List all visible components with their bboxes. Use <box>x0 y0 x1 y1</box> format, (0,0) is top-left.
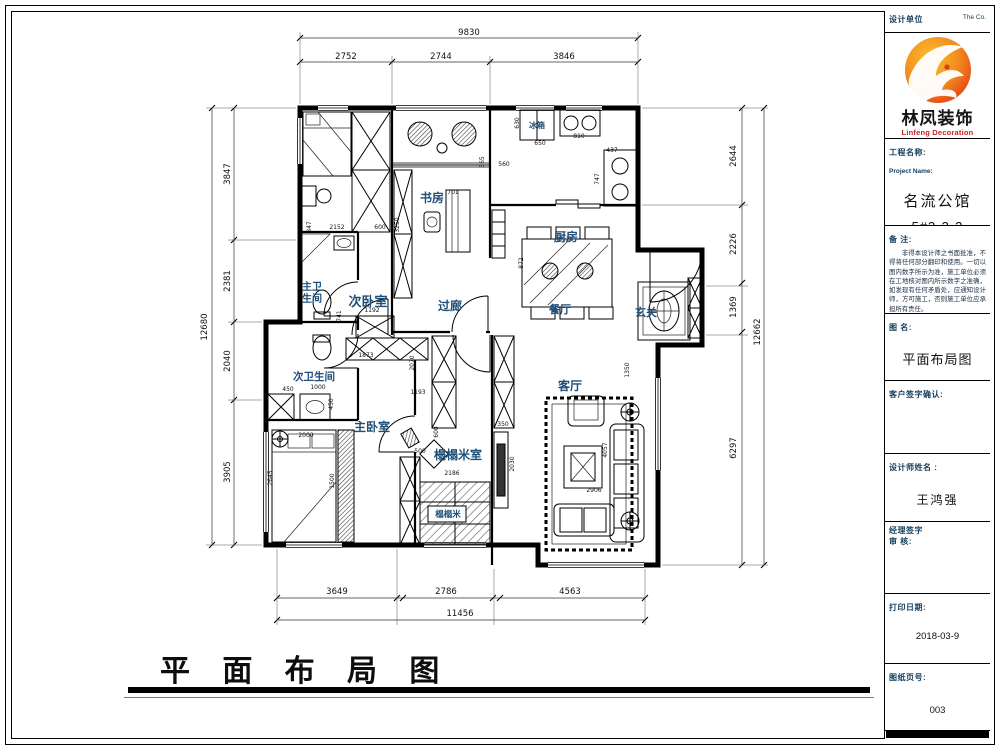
ceiling-fan-icon <box>621 403 639 421</box>
manager-signature-section: 经理签字 审 核: <box>885 522 990 594</box>
dim-label: 2030 <box>509 456 516 471</box>
dim-label: 1000 <box>310 384 325 391</box>
dim-label: 6297 <box>729 437 739 459</box>
dim-label: 872 <box>518 257 525 269</box>
client-signature-label: 客户签字确认: <box>889 390 943 399</box>
dim-label: 2645 <box>267 470 274 485</box>
room-label-dining: 餐厅 <box>548 302 571 316</box>
dim-label: 810 <box>573 133 585 140</box>
dim-label: 847 <box>306 221 313 233</box>
room-label-second-bedroom: 次卧室 <box>348 294 387 310</box>
floor-plan-canvas: 9830275227443846126803847238120403905264… <box>0 0 884 750</box>
remarks-section: 备 注: 非得本设计师之书面批准，不得将任何部分翻印和使用。一切以图内数字所示为… <box>885 226 990 314</box>
dim-label: 2381 <box>223 270 233 292</box>
title-block: 设计单位 The Co. 林凤装饰 Linfeng Decoration <box>884 11 990 739</box>
room-label-corridor: 过廊 <box>438 298 462 313</box>
dim-label: 2752 <box>335 52 357 62</box>
dim-label: 560 <box>498 161 510 168</box>
dim-label: 450 <box>282 386 294 393</box>
drawing-name-label: 图 名: <box>889 323 912 332</box>
company-logo: 林凤装饰 Linfeng Decoration <box>885 33 990 139</box>
dim-label: 3905 <box>223 461 233 483</box>
dim-label: 1193 <box>410 389 425 396</box>
room-label-second-bath: 次卫生间 <box>293 370 335 383</box>
label-tatami-mat: 榻榻米 <box>435 509 461 520</box>
dim-label: 630 <box>514 117 521 129</box>
dim-label: 12680 <box>200 313 210 340</box>
master-bath-fixtures <box>302 234 354 319</box>
sheet-number-value: 003 <box>889 705 986 716</box>
dim-label: 500 <box>414 448 426 455</box>
ceiling-fan-icon <box>621 512 639 530</box>
sheet-title: 平 面 布 局 图 <box>160 646 451 690</box>
designer-label: 设计师姓名 : <box>889 463 937 472</box>
logo-en-name: Linfeng Decoration <box>889 128 986 137</box>
designer-section: 设计师姓名 : 王鸿强 <box>885 454 990 522</box>
project-name-section: 工程名称: Project Name: 名流公馆 5#3-3-2 <box>885 139 990 226</box>
titleblock-header: 设计单位 The Co. <box>885 11 990 33</box>
room-label-study: 书房 <box>420 190 444 205</box>
dim-label: 9830 <box>458 28 480 38</box>
room-label-entry: 玄关 <box>635 305 657 319</box>
designer-name-value: 王鸿强 <box>889 491 986 508</box>
dim-label: 437 <box>606 147 618 154</box>
master-bed <box>272 430 354 542</box>
company-text: The Co. <box>963 14 986 21</box>
dim-label: 2186 <box>444 470 459 477</box>
phoenix-logo-icon <box>902 35 974 105</box>
sheet-number-section: 图纸页号: 003 <box>885 664 990 731</box>
label-refrigerator: 冰箱 <box>529 120 545 130</box>
dim-label: 1350 <box>624 362 631 377</box>
dim-label: 2906 <box>586 487 601 494</box>
dim-label: 350 <box>497 421 509 428</box>
dim-label: 2644 <box>729 145 739 167</box>
sheet-number-label: 图纸页号: <box>889 673 926 682</box>
dim-label: 4057 <box>602 442 609 457</box>
drawing-name-value: 平面布局图 <box>889 349 986 368</box>
dim-label: 2000 <box>298 432 313 439</box>
dim-label: 2744 <box>430 52 452 62</box>
titleblock-bottom-bar <box>886 731 989 738</box>
design-unit-label: 设计单位 <box>889 14 923 25</box>
dim-label: 2040 <box>223 350 233 372</box>
dim-label: 450 <box>328 398 335 410</box>
dim-label: 3847 <box>223 163 233 185</box>
logo-cn-name: 林凤装饰 <box>889 110 986 128</box>
dim-label: 747 <box>594 173 601 185</box>
dim-label: 12662 <box>753 318 763 345</box>
project-name-label-en: Project Name: <box>889 168 933 175</box>
dim-label: 2070 <box>409 355 416 370</box>
room-label-living: 客厅 <box>557 378 582 393</box>
client-signature-section: 客户签字确认: <box>885 381 990 454</box>
dim-label: 1369 <box>729 296 739 318</box>
dim-label: 650 <box>534 140 546 147</box>
room-label-tatami-room: 榻榻米室 <box>433 447 482 462</box>
dim-label: 565 <box>479 156 486 168</box>
dim-label: 3846 <box>553 52 575 62</box>
remarks-label: 备 注: <box>889 235 912 244</box>
balcony-chairs <box>408 122 476 153</box>
dim-label: 11456 <box>446 609 473 619</box>
dim-label: 701 <box>447 189 459 196</box>
remarks-text: 非得本设计师之书面批准，不得将任何部分翻印和使用。一切以图内数字所示为准，施工单… <box>889 249 986 314</box>
title-underline-bar <box>128 687 870 693</box>
room-label-master-bedroom: 主卧室 <box>354 419 390 434</box>
drawing-sheet: 9830275227443846126803847238120403905264… <box>0 0 1000 750</box>
print-date-label: 打印日期: <box>889 603 926 612</box>
dim-label: 2226 <box>729 233 739 255</box>
living-room-set <box>494 396 644 550</box>
drawing-name-section: 图 名: 平面布局图 <box>885 314 990 381</box>
title-underline-rule <box>124 697 874 698</box>
project-number-value: 5#3-3-2 <box>889 219 986 226</box>
project-name-label: 工程名称: <box>889 148 926 157</box>
dim-label: 1873 <box>358 352 373 359</box>
dim-label: 2152 <box>329 224 344 231</box>
dim-label: 2786 <box>435 587 457 597</box>
dim-label: 1500 <box>329 473 336 488</box>
room-label-kitchen: 厨房 <box>554 229 578 244</box>
dim-label: 600 <box>374 224 386 231</box>
dim-label: 600 <box>433 426 440 438</box>
dim-label: 3649 <box>326 587 348 597</box>
manager-signature-label: 经理签字 <box>889 525 986 536</box>
dim-label: 741 <box>336 310 343 322</box>
room-label-master-bath-1: 主卫 <box>302 280 322 293</box>
print-date-section: 打印日期: 2018-03-9 <box>885 594 990 664</box>
bed-second-bedroom <box>303 112 351 176</box>
dim-label: 4563 <box>559 587 581 597</box>
print-date-value: 2018-03-9 <box>889 631 986 642</box>
ceiling-fan-icon <box>272 431 288 447</box>
review-label: 审 核: <box>889 536 986 547</box>
room-label-master-bath-2: 生间 <box>302 292 322 305</box>
project-name-value: 名流公馆 <box>889 190 986 211</box>
dim-label: 3250 <box>394 217 401 232</box>
